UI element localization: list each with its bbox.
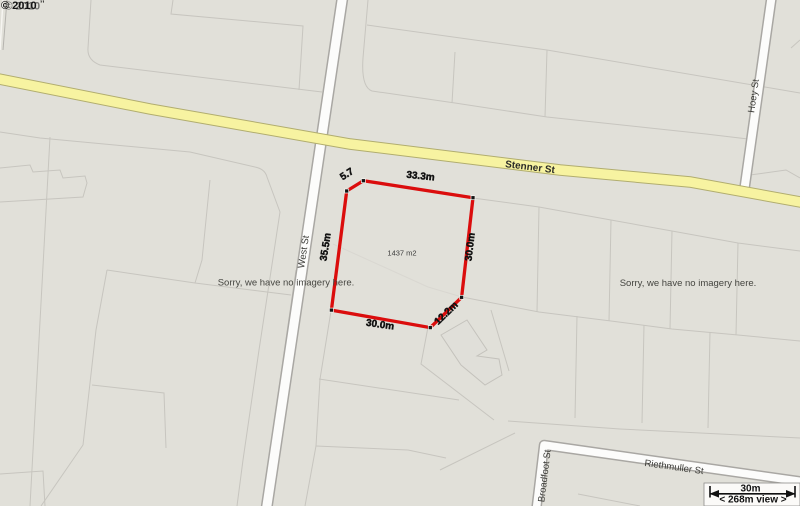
svg-text:< 268m view >: < 268m view > bbox=[719, 495, 786, 506]
svg-text:30m: 30m bbox=[740, 484, 760, 495]
svg-text:Sorry, we have no imagery here: Sorry, we have no imagery here. bbox=[218, 278, 355, 289]
svg-text:Sorry, we have no imagery here: Sorry, we have no imagery here. bbox=[620, 278, 757, 289]
svg-text:ʼʼ: ʼʼ bbox=[40, 0, 44, 8]
svg-text:© 2010: © 2010 bbox=[5, 1, 41, 13]
svg-text:1437 m2: 1437 m2 bbox=[387, 249, 416, 258]
